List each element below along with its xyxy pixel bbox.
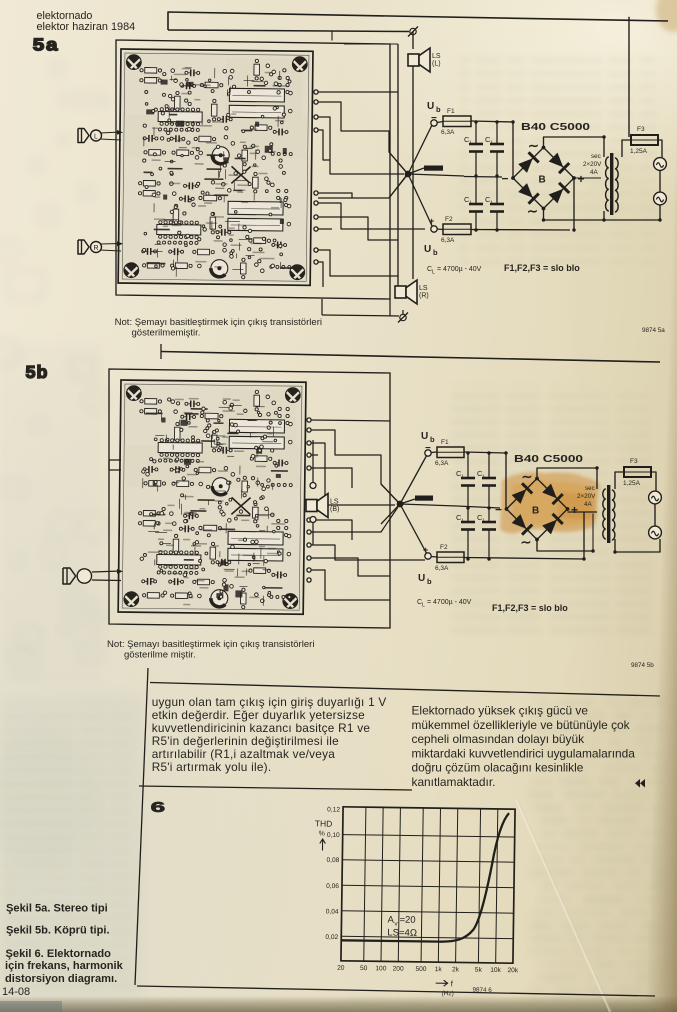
svg-text:100: 100 — [375, 965, 386, 972]
svg-text:L: L — [470, 201, 473, 207]
svg-text:1,25A: 1,25A — [630, 148, 648, 155]
svg-text:F2: F2 — [445, 216, 453, 223]
svg-text:∼: ∼ — [521, 535, 532, 550]
svg-text:(B): (B) — [330, 506, 339, 513]
svg-text:0,04: 0,04 — [326, 908, 339, 915]
svg-text:kuvvetlendiricinin kazancı bas: kuvvetlendiricinin kazancı basitçe R1 ve — [152, 721, 371, 735]
svg-text:5a: 5a — [33, 35, 60, 55]
svg-text:b: b — [433, 248, 438, 257]
svg-text:R5'in değerlerinin değiştirilm: R5'in değerlerinin değiştirilmesi ile — [152, 734, 339, 748]
svg-text:L: L — [470, 141, 473, 147]
svg-text:= 4700µ - 40V: = 4700µ - 40V — [437, 266, 482, 273]
svg-text:(R): (R) — [419, 293, 429, 300]
svg-text:=20: =20 — [399, 915, 415, 926]
svg-text:sec: sec — [591, 153, 601, 160]
svg-text:elektor haziran 1984: elektor haziran 1984 — [37, 21, 136, 33]
svg-text:20: 20 — [337, 965, 345, 972]
svg-text:1k: 1k — [435, 966, 443, 973]
svg-text:B: B — [532, 506, 539, 517]
svg-text:10k: 10k — [490, 967, 501, 974]
svg-text:0,06: 0,06 — [326, 883, 339, 890]
svg-text:%: % — [319, 830, 325, 837]
svg-text:LS: LS — [419, 285, 428, 292]
svg-text:200: 200 — [393, 966, 404, 973]
svg-text:L: L — [483, 475, 486, 481]
svg-text:kanıtlamaktadır.: kanıtlamaktadır. — [412, 775, 496, 789]
svg-text:2×20V: 2×20V — [577, 493, 596, 500]
svg-text:LS=4Ω: LS=4Ω — [387, 927, 417, 938]
svg-text:+: + — [429, 216, 434, 226]
svg-text:9874 5a: 9874 5a — [642, 327, 665, 334]
svg-text:R: R — [93, 245, 98, 252]
svg-text:6: 6 — [151, 799, 166, 816]
svg-text:B40 C5000: B40 C5000 — [521, 121, 590, 133]
svg-text:6,3A: 6,3A — [441, 129, 455, 136]
svg-text:doğru çözüm olacağını kesinlik: doğru çözüm olacağını kesinlikle — [412, 761, 584, 775]
svg-text:miktardaki kuvvetlendirici uyg: miktardaki kuvvetlendirici uygulamaların… — [412, 746, 636, 760]
svg-text:b: b — [427, 577, 432, 586]
svg-text:U: U — [421, 431, 428, 442]
svg-text:U: U — [424, 244, 431, 255]
svg-text:L: L — [422, 603, 425, 609]
svg-text:R5'i artırmak yolu ile).: R5'i artırmak yolu ile). — [152, 760, 272, 774]
svg-text:F1: F1 — [441, 439, 449, 446]
svg-text:U: U — [418, 573, 425, 584]
svg-text:Elektornado yüksek çıkış gücü: Elektornado yüksek çıkış gücü ve — [412, 704, 589, 718]
svg-text:20k: 20k — [507, 967, 518, 974]
svg-text:50: 50 — [360, 965, 368, 972]
svg-text:Şekil 5b. Köprü tipi.: Şekil 5b. Köprü tipi. — [6, 925, 110, 937]
svg-text:B40 C5000: B40 C5000 — [514, 453, 583, 465]
svg-text:LS: LS — [432, 53, 441, 60]
svg-text:0,02: 0,02 — [325, 934, 338, 941]
svg-text:L: L — [483, 519, 486, 525]
svg-text:+: + — [571, 503, 578, 517]
svg-text:v: v — [394, 921, 398, 928]
svg-text:için frekans, harmonik: için frekans, harmonik — [5, 960, 124, 972]
svg-text:6,3A: 6,3A — [435, 460, 449, 467]
svg-text:etkin değerdir. Eğer duyarlık: etkin değerdir. Eğer duyarlık yetersizse — [152, 708, 365, 722]
svg-text:6,3A: 6,3A — [441, 237, 455, 244]
svg-text:L: L — [462, 519, 465, 525]
svg-text:0,12: 0,12 — [327, 806, 340, 813]
svg-text:4A: 4A — [584, 501, 593, 508]
svg-text:L: L — [94, 133, 98, 140]
svg-text:−: − — [495, 503, 502, 517]
svg-text:artırılabilir (R1,i azaltmak v: artırılabilir (R1,i azaltmak ve/veya — [152, 747, 336, 761]
svg-text:1,25A: 1,25A — [623, 480, 641, 487]
svg-text:sec: sec — [585, 485, 595, 492]
svg-text:L: L — [432, 270, 435, 276]
svg-text:5k: 5k — [475, 967, 483, 974]
svg-text:9874 6: 9874 6 — [472, 987, 492, 994]
svg-text:2k: 2k — [452, 966, 460, 973]
svg-text:f: f — [451, 979, 454, 988]
svg-text:L: L — [491, 141, 494, 147]
svg-text:Şekil 5a. Stereo tipi: Şekil 5a. Stereo tipi — [6, 902, 108, 914]
svg-text:∼: ∼ — [527, 204, 538, 219]
svg-text:F1: F1 — [447, 108, 455, 115]
svg-text:F3: F3 — [630, 458, 638, 465]
svg-text:9874 5b: 9874 5b — [631, 662, 654, 669]
svg-text:500: 500 — [415, 966, 426, 973]
svg-text:distorsiyon diagramı.: distorsiyon diagramı. — [5, 973, 117, 985]
svg-text:gösterilmemiştir.: gösterilmemiştir. — [132, 328, 201, 339]
svg-text:L: L — [491, 201, 494, 207]
svg-text:4A: 4A — [590, 169, 599, 176]
svg-text:THD: THD — [315, 818, 333, 828]
svg-text:mükemmel özellikleriyle ve büt: mükemmel özellikleriyle ve bütünüyle çok — [412, 718, 630, 732]
svg-text:F2: F2 — [440, 544, 448, 551]
svg-text:0,08: 0,08 — [326, 857, 339, 864]
svg-text:F1,F2,F3 = slo blo: F1,F2,F3 = slo blo — [504, 263, 580, 273]
svg-text:= 4700µ - 40V: = 4700µ - 40V — [427, 599, 472, 606]
svg-text:+: + — [423, 545, 428, 555]
svg-text:(Hz): (Hz) — [441, 990, 453, 997]
svg-text:F1,F2,F3 = slo blo: F1,F2,F3 = slo blo — [492, 603, 568, 613]
svg-text:∼: ∼ — [522, 469, 533, 484]
svg-text:L: L — [462, 475, 465, 481]
svg-text:Not: Şemayı basitleştirmek içi: Not: Şemayı basitleştirmek için çıkış tr… — [115, 317, 322, 328]
svg-text:14-08: 14-08 — [2, 986, 30, 998]
svg-text:6,3A: 6,3A — [435, 565, 449, 572]
svg-text:(L): (L) — [432, 61, 441, 68]
svg-text:0,10: 0,10 — [327, 832, 340, 839]
svg-text:F3: F3 — [637, 126, 645, 133]
svg-text:2×20V: 2×20V — [583, 161, 602, 168]
svg-text:cepheli olmasından dolayı büyü: cepheli olmasından dolayı büyük — [412, 732, 585, 746]
svg-text:gösterilme miştir.: gösterilme miştir. — [124, 650, 196, 661]
svg-text:−: − — [502, 172, 509, 186]
svg-text:Not: Şemayı basitleştirmek içi: Not: Şemayı basitleştirmek için çıkış tr… — [107, 639, 314, 650]
svg-text:LS: LS — [330, 499, 339, 506]
svg-text:uygun olan tam çıkış için giri: uygun olan tam çıkış için giriş duyarlığ… — [152, 695, 387, 709]
svg-text:B: B — [539, 175, 546, 186]
svg-text:Şekil 6. Elektornado: Şekil 6. Elektornado — [6, 948, 112, 960]
svg-text:5b: 5b — [26, 362, 49, 382]
svg-text:+: + — [578, 172, 585, 186]
svg-text:U: U — [427, 101, 434, 112]
svg-text:∼: ∼ — [528, 138, 539, 153]
